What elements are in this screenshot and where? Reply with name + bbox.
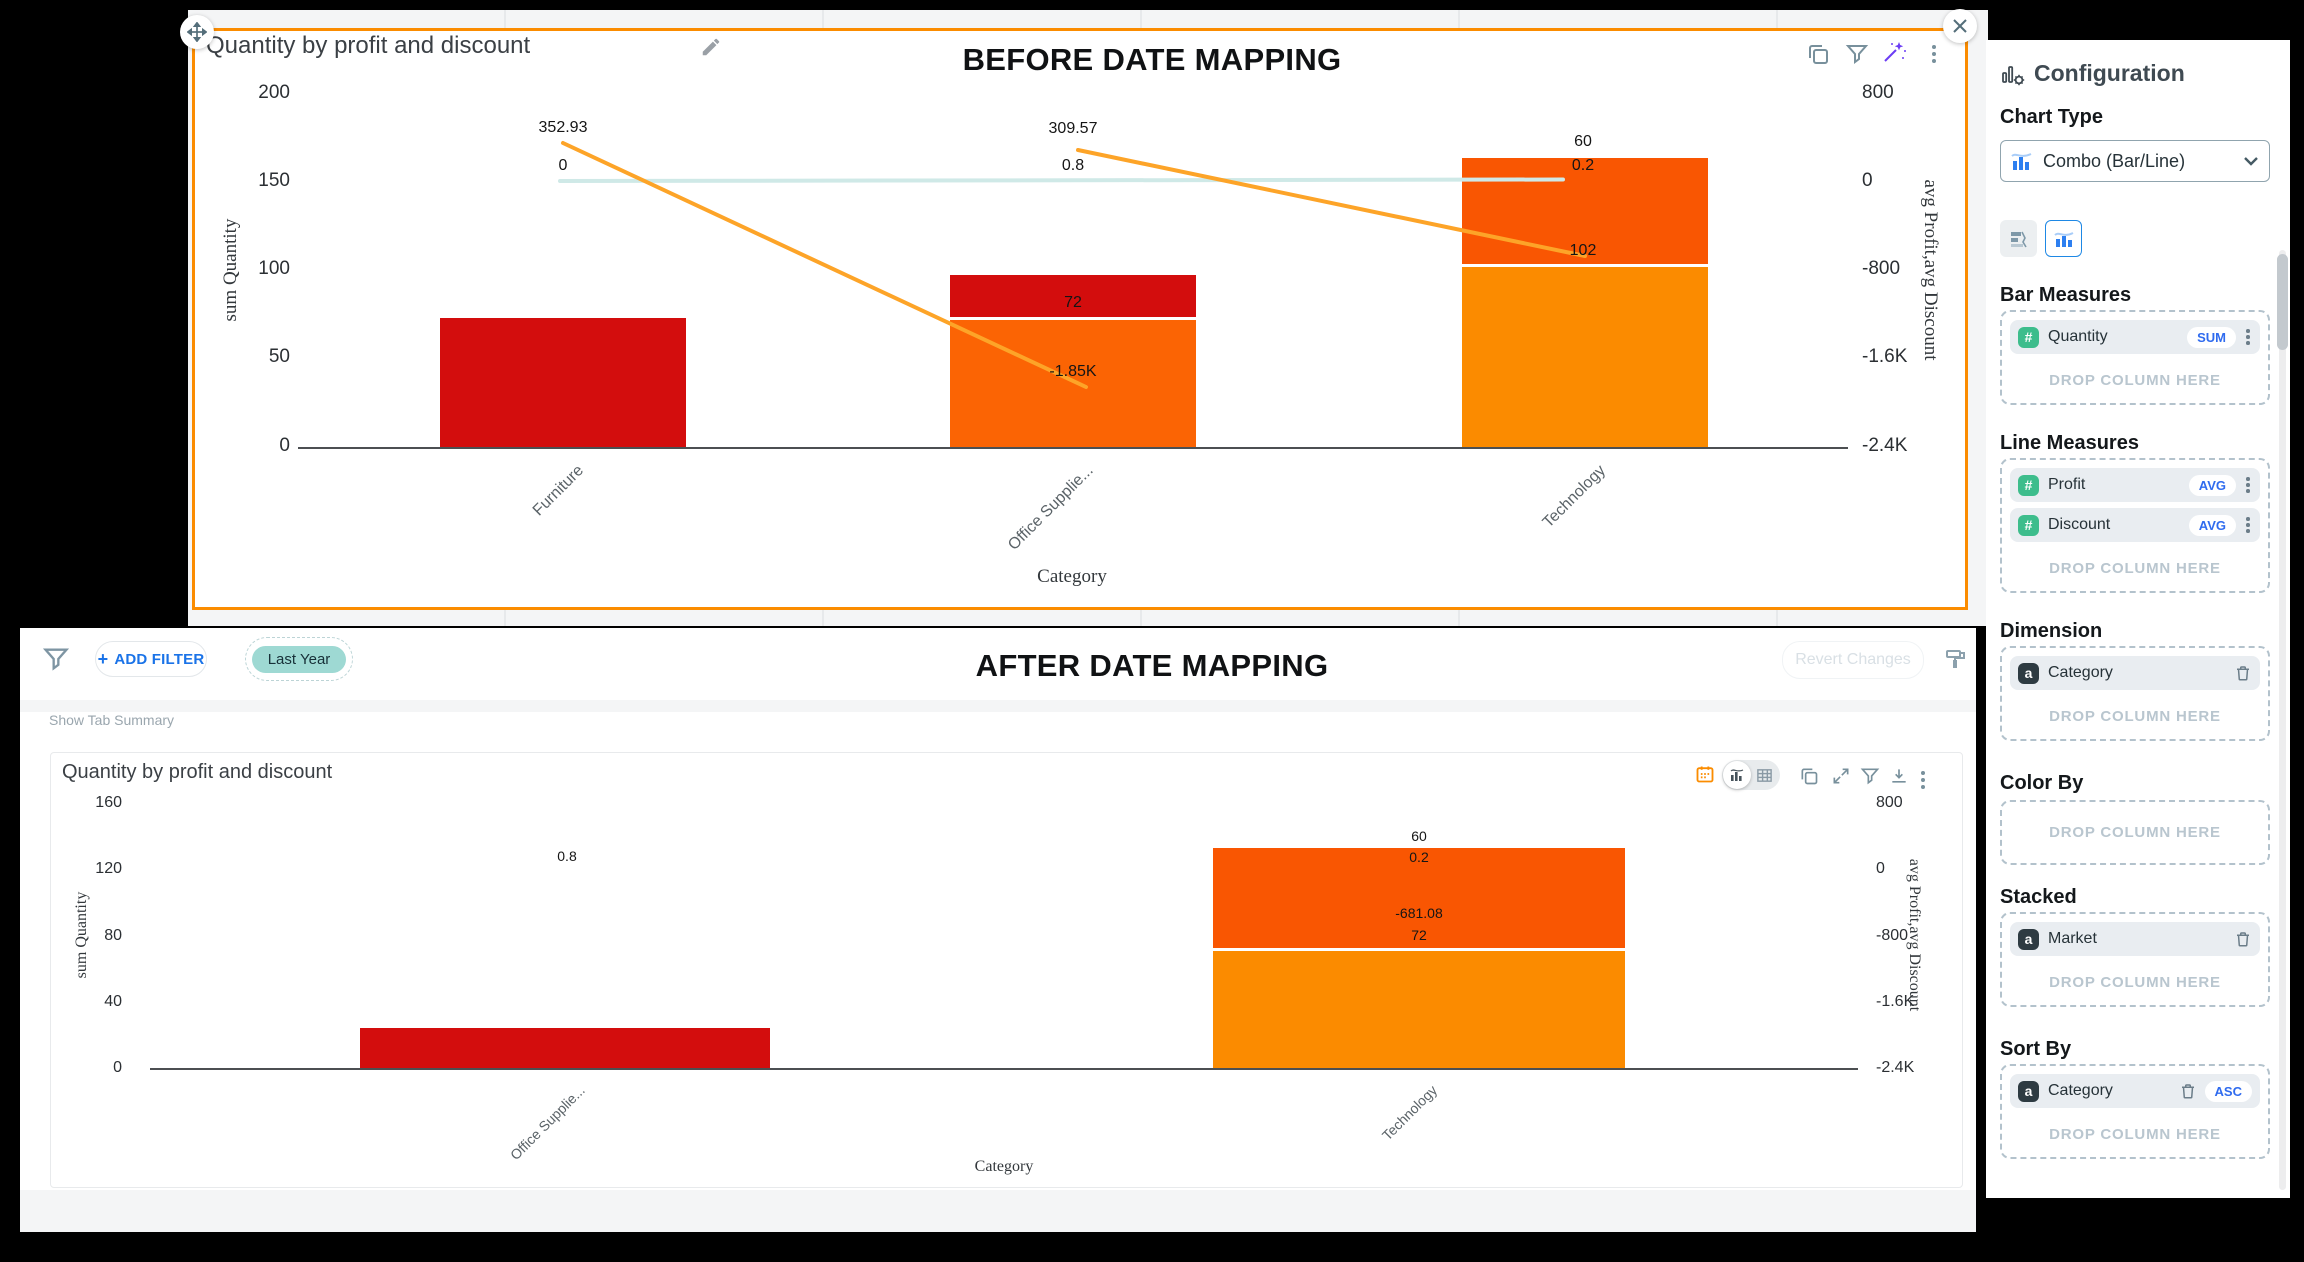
calendar-icon[interactable] [1695,764,1715,784]
bar-office[interactable] [360,1028,770,1069]
chart-menu-kebab-icon[interactable] [1928,42,1940,66]
x-axis-line [150,1068,1858,1070]
chart-type-select[interactable]: Combo (Bar/Line) [2000,140,2270,182]
bar-technology-bottom-segment[interactable] [1462,267,1708,448]
value-label: 102 [1570,242,1597,260]
stacked-dropzone[interactable]: a Market DROP COLUMN HERE [2000,912,2270,1007]
widget-move-handle[interactable] [180,15,214,49]
aggregation-badge[interactable]: AVG [2189,475,2236,496]
line-measures-label: Line Measures [2000,432,2139,455]
card-menu-kebab-icon[interactable] [1918,768,1928,792]
bar-furniture[interactable] [440,318,686,448]
expand-icon[interactable] [1831,766,1851,786]
y2-tick: -2.4K [1862,435,1907,457]
dimension-pill-category[interactable]: a Category [2010,656,2260,690]
drop-column-hint: DROP COLUMN HERE [2010,548,2260,583]
x-axis-line [298,447,1848,449]
value-label: 309.57 [1049,120,1098,138]
chart-type-value: Combo (Bar/Line) [2043,151,2243,172]
value-label: 60 [1574,133,1592,151]
y-tick: 40 [104,993,122,1011]
chart-type-label: Chart Type [2000,106,2103,129]
measure-name: Quantity [2048,328,2187,346]
pill-menu-kebab-icon[interactable] [2244,327,2252,348]
y-tick: 150 [258,170,290,192]
color-by-label: Color By [2000,772,2083,795]
x-axis-title: Category [1037,566,1107,588]
y2-tick: -2.4K [1876,1059,1914,1077]
copy-chart-icon[interactable] [1806,42,1830,66]
show-tab-summary-link[interactable]: Show Tab Summary [49,712,174,728]
y-tick: 200 [258,82,290,104]
left-axis-title: sum Quantity [220,219,242,322]
filter-card-icon[interactable] [1860,766,1880,786]
before-heading: BEFORE DATE MAPPING [0,42,2304,78]
trash-icon[interactable] [2234,664,2252,682]
value-label: 0 [559,157,568,175]
bar-measures-label: Bar Measures [2000,284,2131,307]
color-by-dropzone[interactable]: DROP COLUMN HERE [2000,800,2270,865]
move-icon [187,22,207,42]
configuration-panel [1986,40,2290,1198]
stacked-pill-market[interactable]: a Market [2010,922,2260,956]
y2-tick: 0 [1862,170,1873,192]
drop-column-hint: DROP COLUMN HERE [2010,810,2260,855]
bar-measures-dropzone[interactable]: # Quantity SUM DROP COLUMN HERE [2000,310,2270,405]
pill-menu-kebab-icon[interactable] [2244,515,2252,536]
screen: Quantity by profit and discount BEFORE D… [0,0,2304,1262]
value-label: 0.8 [1062,157,1084,175]
config-scrollbar-track[interactable] [2279,250,2286,1190]
value-label: 0.2 [1572,157,1594,175]
value-label: 0.8 [557,848,576,864]
y2-tick: -800 [1876,927,1908,945]
value-label: -681.08 [1395,905,1442,921]
measure-name: Profit [2048,476,2189,494]
drop-column-hint: DROP COLUMN HERE [2010,962,2260,997]
bar-office-bottom-segment[interactable] [950,320,1196,448]
line-measures-dropzone[interactable]: # Profit AVG # Discount AVG DROP COLUMN … [2000,458,2270,593]
y-tick: 80 [104,927,122,945]
numeric-type-icon: # [2018,475,2039,496]
sort-pill-category[interactable]: a Category ASC [2010,1074,2260,1108]
stacked-label: Stacked [2000,886,2077,909]
dimension-name: Category [2048,664,2234,682]
text-type-icon: a [2018,663,2039,684]
measure-pill-quantity[interactable]: # Quantity SUM [2010,320,2260,354]
left-axis-title: sum Quantity [73,892,91,979]
value-label: 72 [1411,927,1427,943]
y2-tick: -800 [1862,258,1900,280]
trash-icon[interactable] [2234,930,2252,948]
chart-view-icon[interactable] [1723,761,1751,789]
configuration-title: Configuration [2034,60,2185,87]
filter-chart-icon[interactable] [1845,42,1869,66]
y-tick: 50 [269,346,290,368]
after-chart-card [50,752,1963,1188]
measure-pill-discount[interactable]: # Discount AVG [2010,508,2260,542]
y-tick: 100 [258,258,290,280]
y2-tick: 800 [1876,794,1903,812]
dimension-label: Dimension [2000,620,2102,643]
y2-tick: 800 [1862,82,1894,104]
duplicate-icon[interactable] [1799,766,1819,786]
close-icon [1952,18,1968,34]
drop-column-hint: DROP COLUMN HERE [2010,1114,2260,1149]
magic-wand-icon[interactable] [1880,38,1908,66]
chevron-down-icon [2243,155,2259,167]
combo-chart-icon [2011,150,2033,172]
y-tick: 0 [113,1059,122,1077]
dimension-dropzone[interactable]: a Category DROP COLUMN HERE [2000,646,2270,741]
panel-footer-band [20,1190,1976,1232]
text-type-icon: a [2018,1081,2039,1102]
numeric-type-icon: # [2018,327,2039,348]
chart-style-option-1-button[interactable] [2000,220,2037,257]
sort-by-label: Sort By [2000,1038,2071,1061]
chart-style-option-2-button[interactable] [2045,220,2082,257]
sort-by-dropzone[interactable]: a Category ASC DROP COLUMN HERE [2000,1064,2270,1159]
chart-table-toggle[interactable] [1722,760,1780,790]
measure-pill-profit[interactable]: # Profit AVG [2010,468,2260,502]
divider-band [20,700,1976,712]
value-label: -1.85K [1049,363,1096,381]
drop-column-hint: DROP COLUMN HERE [2010,696,2260,731]
table-view-icon[interactable] [1756,767,1773,784]
stacked-name: Market [2048,930,2234,948]
value-label: 0.2 [1409,849,1428,865]
value-label: 352.93 [539,119,588,137]
y-tick: 160 [95,794,122,812]
text-type-icon: a [2018,929,2039,950]
x-axis-title: Category [975,1158,1034,1176]
y2-tick: 0 [1876,860,1885,878]
measure-name: Discount [2048,516,2189,534]
bar-technology-bottom-segment[interactable] [1213,951,1625,1069]
drop-column-hint: DROP COLUMN HERE [2010,360,2260,395]
right-axis-title: avg Profit,avg Discount [1905,859,1923,1011]
pill-menu-kebab-icon[interactable] [2244,475,2252,496]
right-axis-title: avg Profit,avg Discount [1919,179,1941,360]
after-chart-title: Quantity by profit and discount [62,761,332,784]
numeric-type-icon: # [2018,515,2039,536]
y-tick: 0 [279,435,290,457]
sort-direction-badge[interactable]: ASC [2205,1081,2252,1102]
y-tick: 120 [95,860,122,878]
after-heading: AFTER DATE MAPPING [0,648,2304,684]
aggregation-badge[interactable]: AVG [2189,515,2236,536]
widget-close-button[interactable] [1943,9,1977,43]
trash-icon[interactable] [2179,1082,2197,1100]
configuration-icon [2000,62,2026,88]
download-icon[interactable] [1889,766,1909,786]
value-label: 72 [1064,294,1082,312]
y2-tick: -1.6K [1862,346,1907,368]
value-label: 60 [1411,828,1427,844]
sort-name: Category [2048,1082,2179,1100]
config-scrollbar-thumb[interactable] [2277,254,2288,350]
aggregation-badge[interactable]: SUM [2187,327,2236,348]
